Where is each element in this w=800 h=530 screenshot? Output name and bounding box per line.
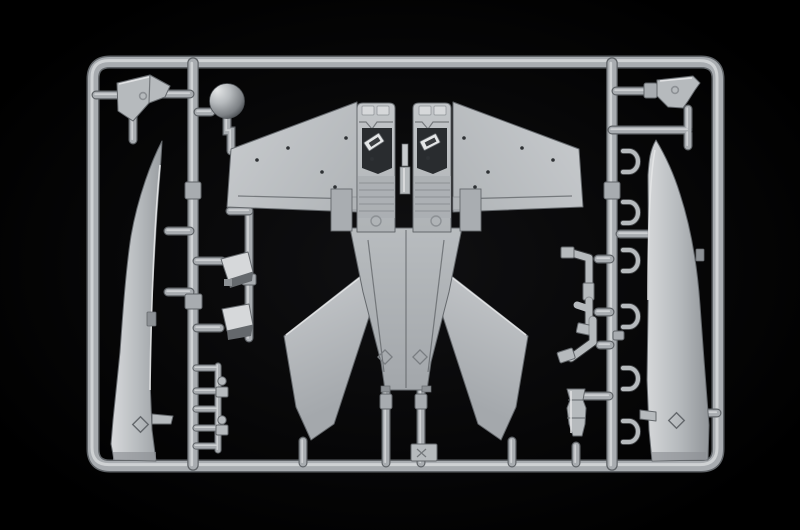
cockpit-dot [426, 156, 430, 160]
side-piece-fin [640, 410, 656, 421]
photo-stage [0, 0, 800, 530]
side-plate-right [460, 189, 481, 231]
ladder-fitting-knob [218, 377, 226, 385]
fuselage-half-left [357, 103, 395, 232]
ladder-fitting-knob [218, 416, 226, 424]
left-inner-runner [192, 63, 193, 465]
nozzle-stub [381, 386, 390, 392]
ladder-fitting-box [216, 387, 228, 397]
right-inner-runner [611, 63, 612, 465]
nozzle-stub [422, 386, 431, 392]
gap-blade-part [400, 167, 410, 194]
ladder-fitting-box [216, 425, 228, 435]
gear-strut-foot [561, 247, 574, 258]
side-piece-fin [152, 414, 173, 424]
cockpit-dot [370, 157, 374, 161]
side-piece-base-shade [652, 452, 706, 460]
side-plate-left [331, 189, 352, 231]
scoop-tab [224, 279, 232, 286]
molded-tag [411, 444, 437, 461]
canopy-sill-tab [419, 106, 431, 115]
side-piece-step [696, 249, 704, 261]
side-piece-base-shade [113, 452, 156, 460]
cockpit-recess [417, 128, 447, 174]
sprue-photo [0, 0, 800, 530]
canopy-sill-tab [362, 106, 374, 115]
canopy-sill-tab [434, 106, 446, 115]
fuselage-half-right [413, 103, 451, 232]
gap-blade-part [402, 144, 408, 166]
radome-ball [210, 84, 245, 119]
canopy-sill-tab [377, 106, 389, 115]
side-piece-step [147, 312, 156, 326]
